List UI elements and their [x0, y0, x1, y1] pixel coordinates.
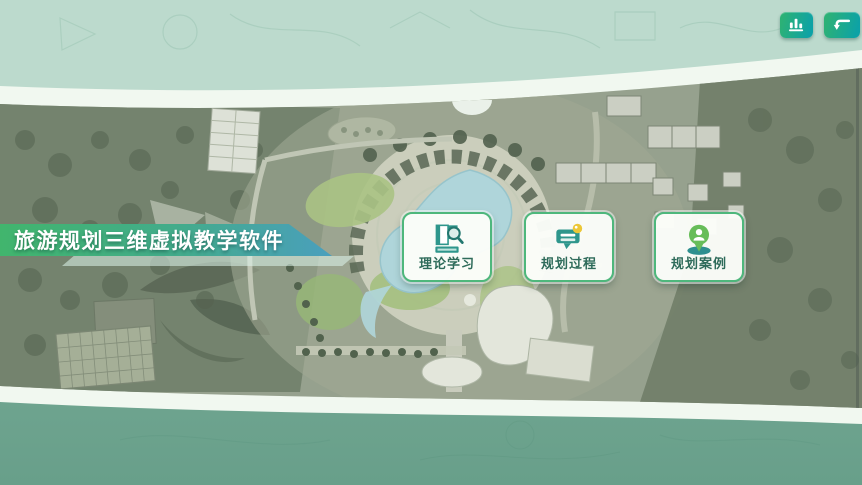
bar-chart-icon [786, 15, 807, 35]
page-title: 旅游规划三维虚拟教学软件 [14, 225, 284, 255]
menu-button-planning-case[interactable]: 规划案例 [654, 212, 744, 282]
return-button[interactable] [824, 12, 860, 38]
app-title-banner: 旅游规划三维虚拟教学软件 [0, 224, 332, 256]
title-banner-accent-strip [62, 256, 354, 266]
app-window: { "header": { "title": "旅游规划三维虚拟教学软件" },… [0, 0, 862, 485]
person-pin-icon [680, 221, 718, 262]
menu-button-theory-study[interactable]: 理论学习 [402, 212, 492, 282]
presentation-bubble-icon [550, 221, 588, 260]
return-icon [831, 15, 853, 36]
book-magnifier-icon [428, 221, 466, 260]
statistics-button[interactable] [780, 12, 813, 38]
menu-button-planning-process[interactable]: 规划过程 [524, 212, 614, 282]
